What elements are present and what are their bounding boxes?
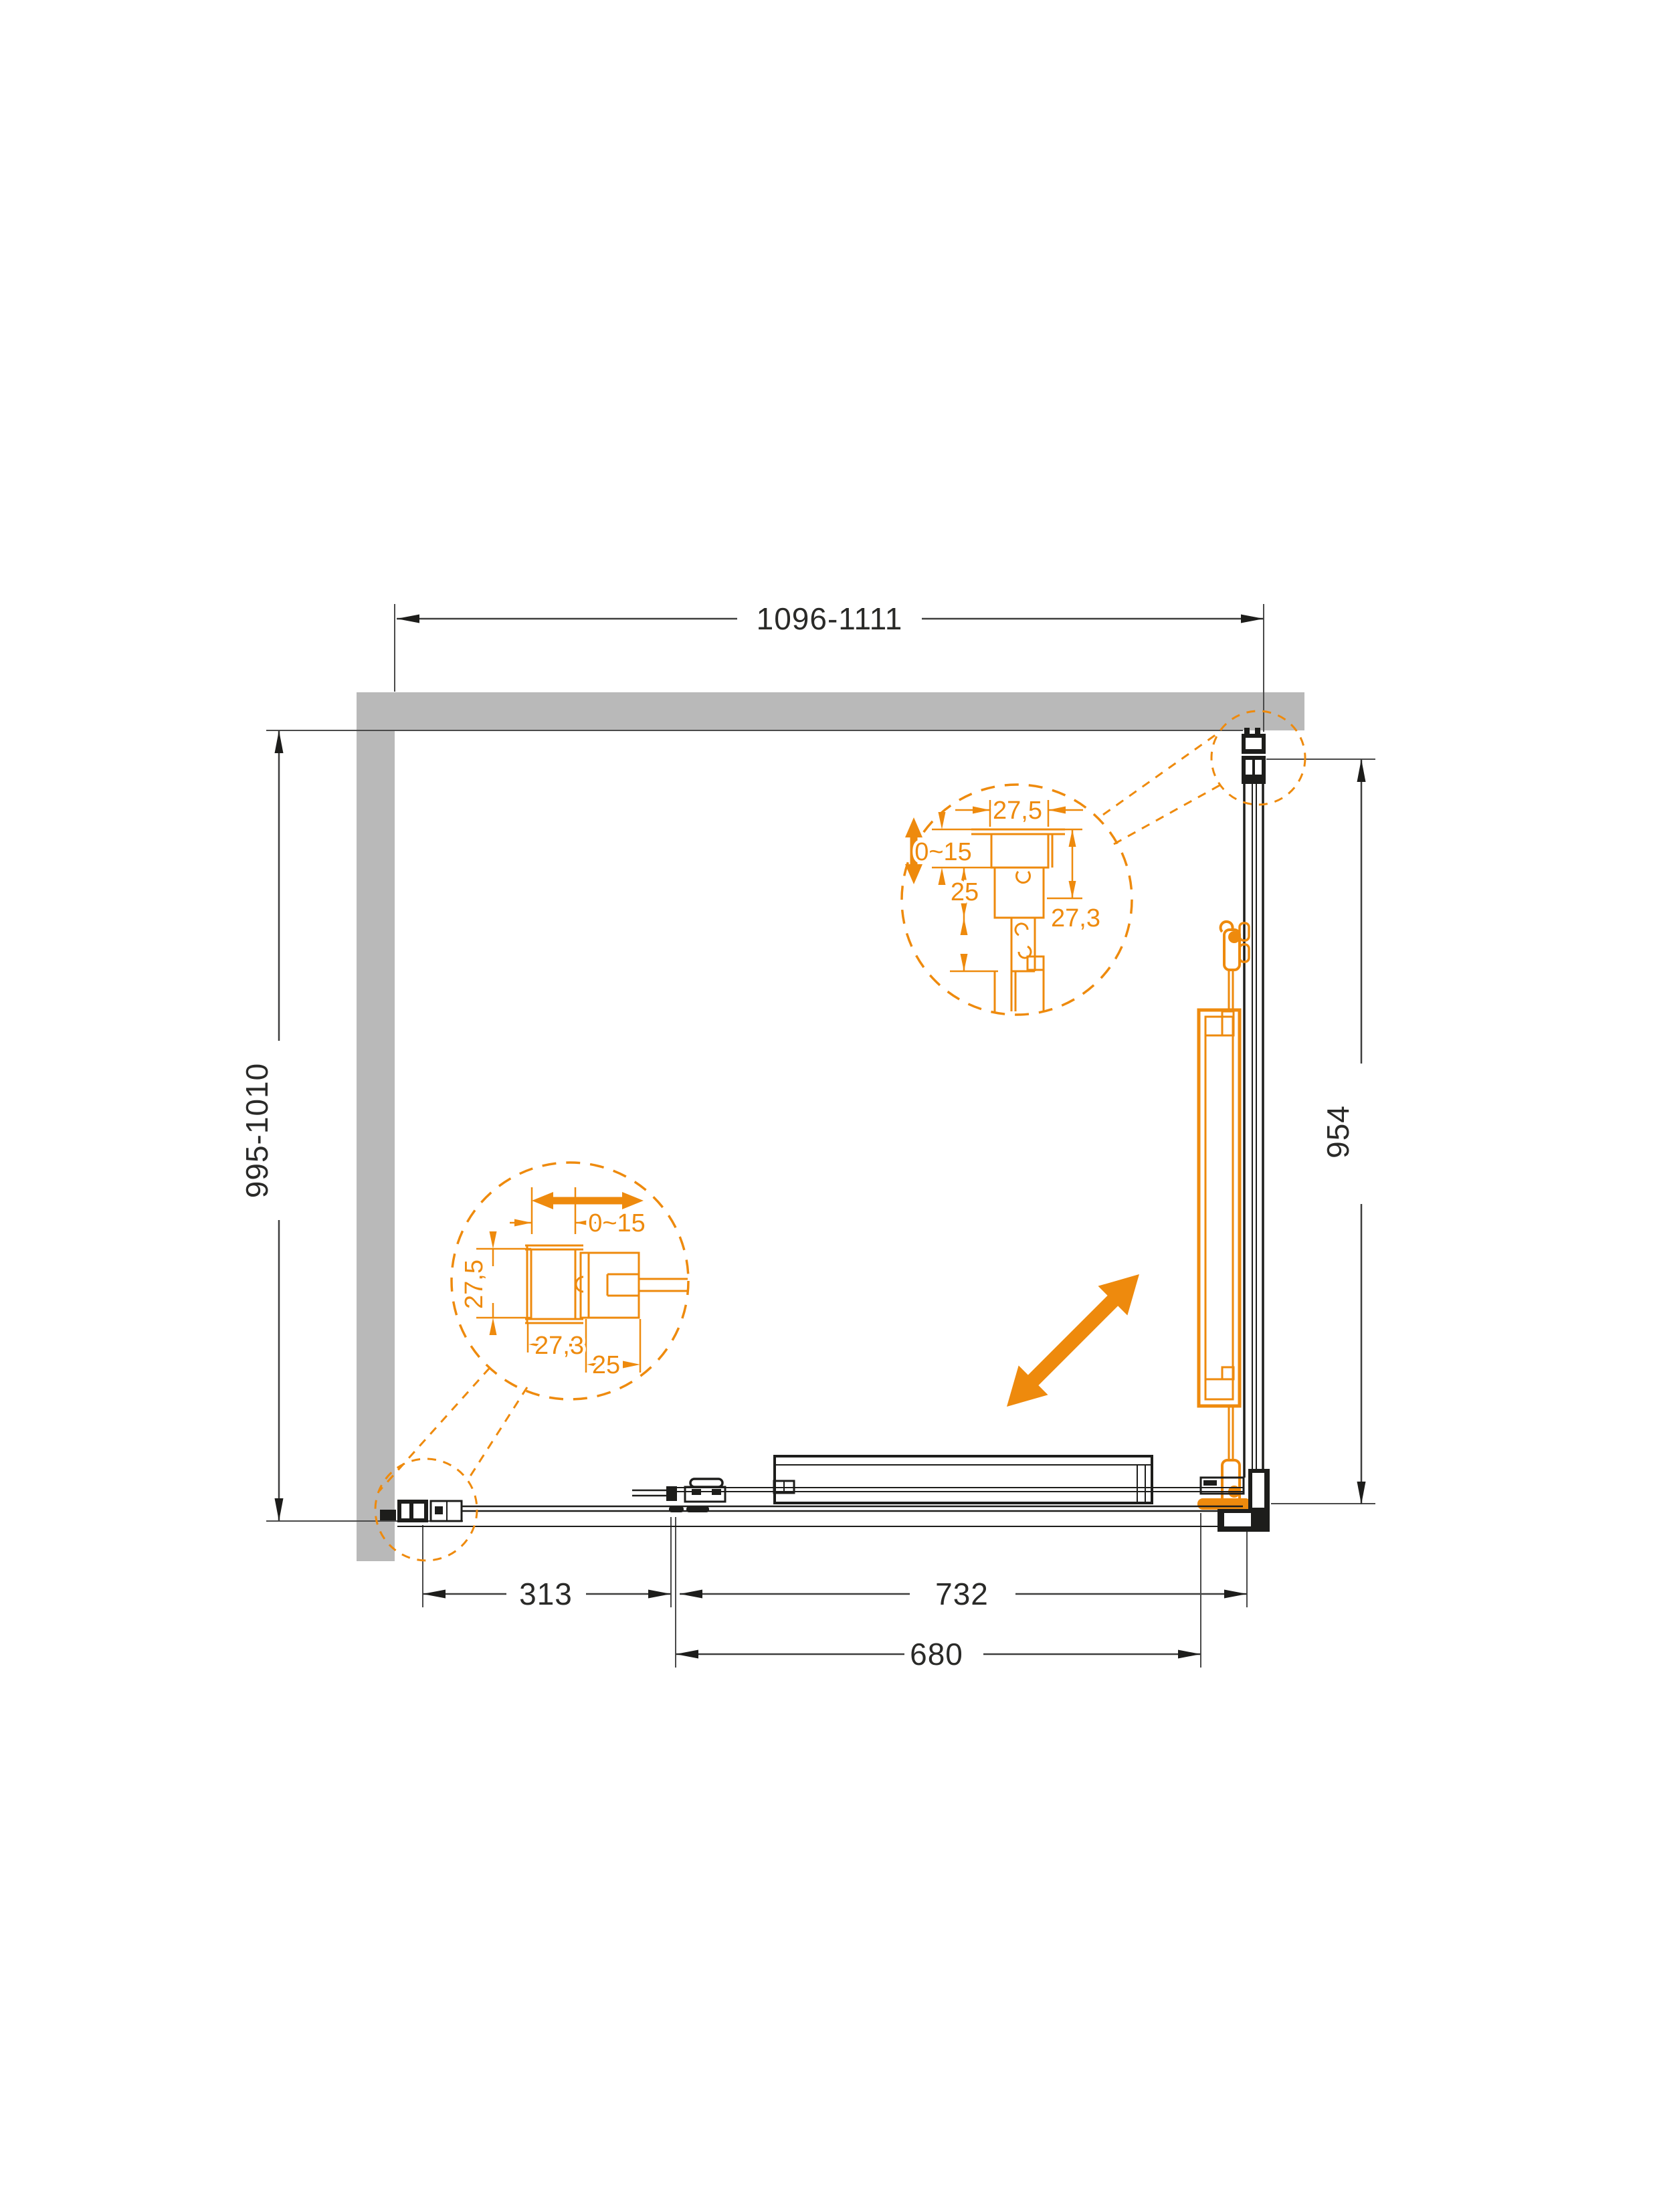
sliding-door-right (1197, 922, 1251, 1521)
adjust-horizontal-arrow-icon (532, 1192, 644, 1209)
dim-top-width-label: 1096-1111 (757, 601, 903, 636)
detail-bottom-offset-label: 25 (592, 1351, 620, 1379)
detail-bottom-width-label: 27,3 (534, 1332, 584, 1360)
plan-drawing-page: 1096-1111 995-1010 954 313 732 (0, 0, 1659, 2212)
dim-front-span-label: 732 (935, 1577, 989, 1611)
dimension-back-313: 313 (423, 1517, 671, 1611)
arrowhead-left-icon (397, 615, 419, 623)
bottom-guide (1197, 1498, 1251, 1510)
detail-top-adjust-label: 0~15 (914, 838, 972, 866)
detail-bottom-adjust-label: 0~15 (588, 1209, 646, 1237)
arrowhead-down-icon (1357, 1482, 1366, 1504)
right-fixed-panel (1242, 728, 1266, 1478)
wall-left (357, 692, 395, 1561)
door-catch (690, 1479, 722, 1487)
detail-top-inset-label: 25 (951, 878, 979, 906)
dimension-right-954: 954 (1266, 759, 1375, 1504)
arrowhead-up-icon (275, 730, 284, 753)
bottom-assembly (380, 1456, 1270, 1532)
arrowhead-up-icon (1357, 759, 1366, 782)
top-roller-wheel (1228, 931, 1240, 943)
wall-top (357, 692, 1304, 730)
arrowhead-down-icon (275, 1498, 284, 1521)
bottom-door-panel (775, 1456, 1152, 1503)
shower-enclosure-plan: 1096-1111 995-1010 954 313 732 (0, 0, 1659, 2212)
dim-door-opening-label: 680 (910, 1637, 963, 1672)
detail-top-side-label: 27,3 (1051, 904, 1100, 932)
detail-top-width-label: 27,5 (993, 797, 1042, 825)
wall-bracket (380, 1510, 396, 1520)
dim-right-glass-label: 954 (1321, 1105, 1355, 1159)
dim-left-depth-label: 995-1010 (239, 1063, 274, 1198)
arrowhead-right-icon (1241, 615, 1264, 623)
slide-direction-arrow-icon (992, 1260, 1154, 1421)
dim-back-panel-label: 313 (519, 1577, 573, 1611)
detail-bottom-height-label: 27,5 (460, 1260, 488, 1309)
